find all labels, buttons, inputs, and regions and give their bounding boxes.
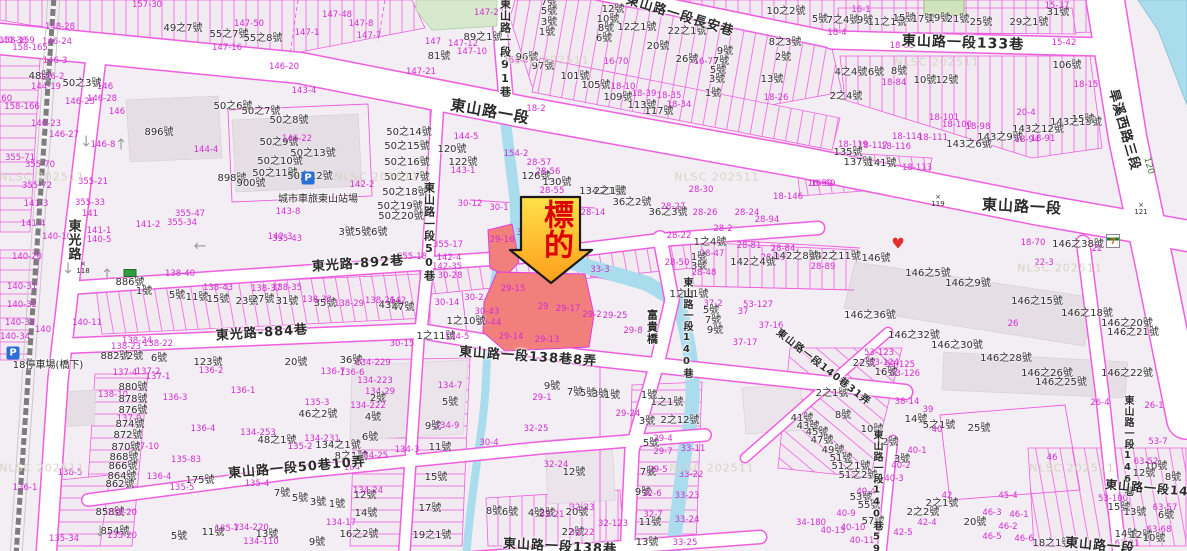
park-area [416,0,497,30]
green-plot [924,0,964,15]
target-marker [505,192,597,287]
map-canvas[interactable]: 157-30148-28146-24158-159158-165146-348號… [0,0,1187,551]
